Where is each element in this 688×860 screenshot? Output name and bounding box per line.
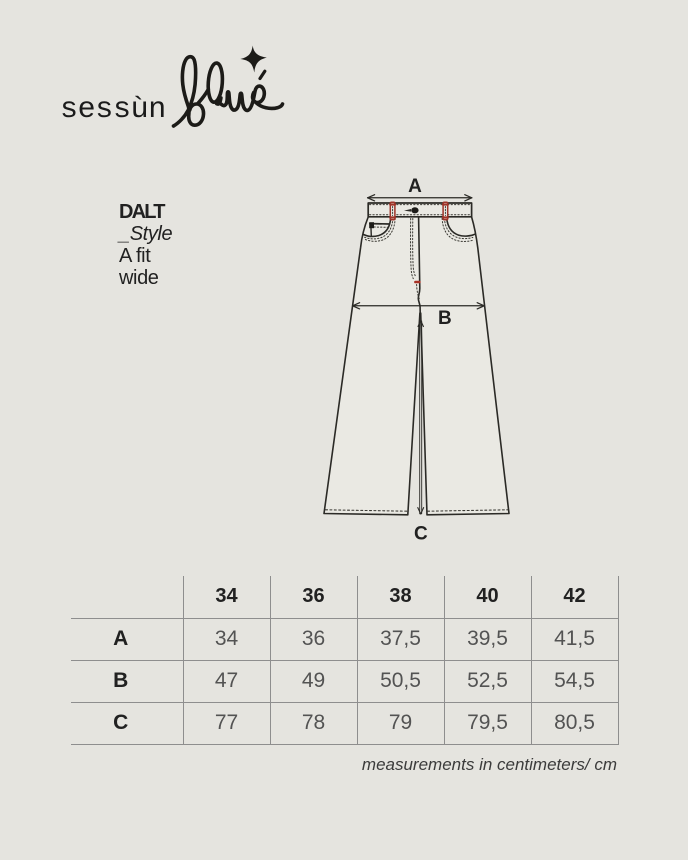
svg-text:B: B — [438, 308, 452, 329]
svg-text:C: C — [414, 524, 428, 545]
svg-text:A: A — [408, 176, 422, 197]
